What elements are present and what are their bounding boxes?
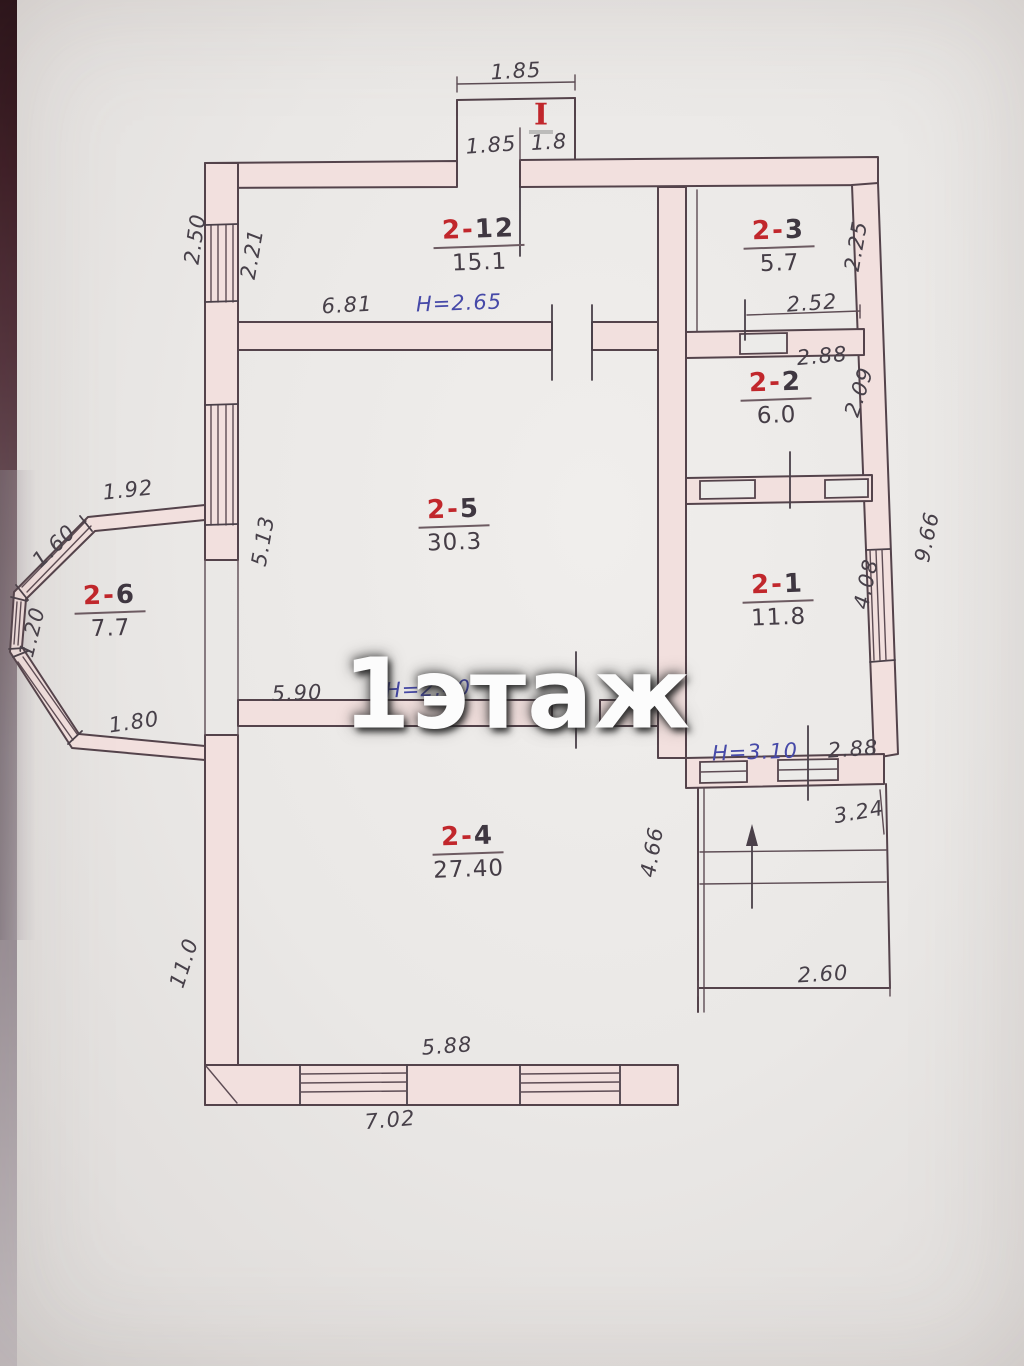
room-number: 2 bbox=[781, 367, 802, 398]
room-label-2-2: 2-2 6.0 bbox=[739, 366, 812, 429]
room-area: 15.1 bbox=[434, 248, 526, 277]
dim-room-2-2-top: 2.88 bbox=[796, 342, 849, 370]
stairs-up-arrow bbox=[746, 824, 758, 846]
room-area: 5.7 bbox=[744, 249, 816, 277]
room-number-prefix: 2- bbox=[750, 569, 784, 600]
room-number: 4 bbox=[473, 821, 494, 852]
room-area: 7.7 bbox=[75, 614, 147, 642]
dim-room-2-4-bottom-outer: 7.02 bbox=[364, 1106, 417, 1134]
room-number-prefix: 2- bbox=[441, 215, 475, 246]
room-number-prefix: 2- bbox=[751, 215, 785, 246]
dim-room-2-4-bottom-inner: 5.88 bbox=[421, 1032, 473, 1059]
porch-label: I bbox=[529, 101, 553, 134]
room-number: 1 bbox=[783, 569, 804, 600]
dim-room-2-5-bottom: 5.90 bbox=[271, 680, 323, 706]
room-number-prefix: 2- bbox=[440, 821, 474, 852]
floor-watermark: 1этаж bbox=[343, 638, 691, 751]
room-number: 3 bbox=[784, 215, 805, 246]
height-note-2-12: H=2.65 bbox=[416, 290, 503, 317]
dim-stairs-bottom: 2.60 bbox=[797, 961, 849, 988]
room-number-prefix: 2- bbox=[426, 494, 460, 525]
room-label-2-1: 2-1 11.8 bbox=[741, 568, 814, 631]
room-label-2-12: 2-12 15.1 bbox=[432, 213, 525, 277]
dim-room-2-12-width: 6.81 bbox=[321, 292, 373, 319]
room-label-2-3: 2-3 5.7 bbox=[742, 214, 815, 277]
floor-plan-photo: 1.85 I 1.85 1.8 2-12 15.1 2-3 5.7 2-2 6.… bbox=[0, 0, 1024, 1366]
room-area: 11.8 bbox=[743, 603, 815, 631]
room-area: 30.3 bbox=[419, 528, 491, 556]
room-number-prefix: 2- bbox=[748, 367, 782, 398]
dim-porch-right: 1.8 bbox=[530, 129, 568, 155]
room-label-2-4: 2-4 27.40 bbox=[431, 820, 504, 883]
dim-porch-left: 1.85 bbox=[465, 131, 517, 158]
height-note-stairs: H=3.10 bbox=[712, 739, 799, 766]
dim-room-2-3-bottom: 2.52 bbox=[786, 289, 838, 316]
room-number: 6 bbox=[115, 580, 136, 611]
room-number: 5 bbox=[459, 494, 480, 525]
dim-porch-top: 1.85 bbox=[490, 58, 542, 85]
room-area: 6.0 bbox=[741, 401, 813, 429]
room-label-2-6: 2-6 7.7 bbox=[73, 579, 146, 642]
room-area: 27.40 bbox=[433, 855, 505, 883]
dim-stairs-top: 2.88 bbox=[827, 735, 879, 762]
room-label-2-5: 2-5 30.3 bbox=[417, 493, 490, 556]
room-number-prefix: 2- bbox=[82, 580, 116, 611]
room-number: 12 bbox=[474, 213, 515, 244]
